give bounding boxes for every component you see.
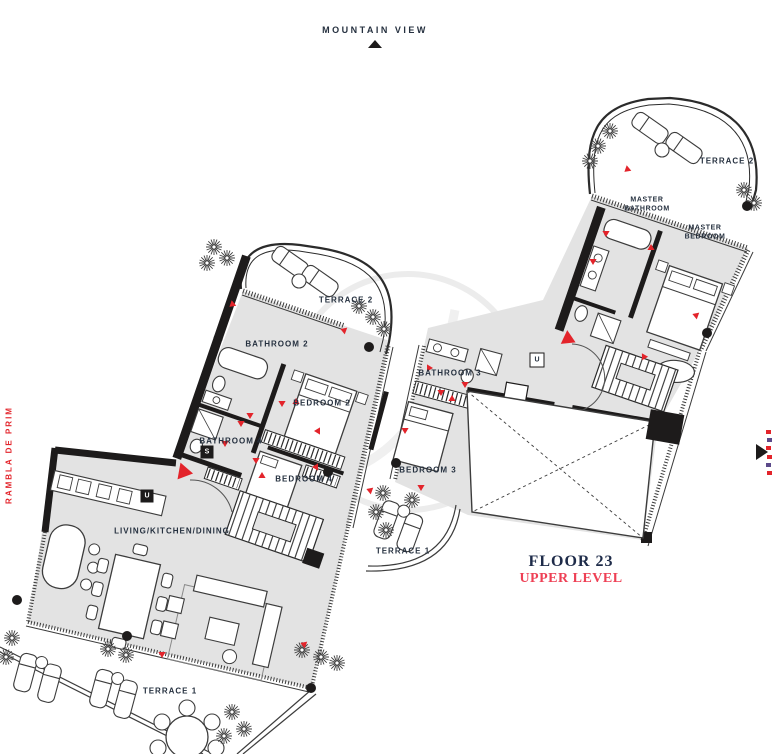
room-label-terrace2-upper: TERRACE 2 [700,157,754,166]
room-label-terrace2-lower: TERRACE 2 [319,296,373,305]
street-label-rambla: RAMBLA DE PRIM [5,406,14,504]
room-label-terrace1-upper: TERRACE 1 [376,547,430,556]
floorplan-canvas: MOUNTAIN VIEW RAMBLA DE PRIM TERRACE 2 B… [0,0,772,754]
floor-number-label: FLOOR 23 [519,553,622,571]
room-label-bedroom3: BEDROOM 3 [399,466,456,475]
room-label-master-bedroom-2: BEDROOM [685,234,726,241]
mountain-view-label: MOUNTAIN VIEW [322,25,428,35]
utility-label-lower: U [141,490,154,503]
room-label-living: LIVING/KITCHEN/DINING [114,527,230,536]
outdoor-dining-table [150,700,224,754]
room-label-bedroom2: BEDROOM 2 [293,399,350,408]
room-label-bathroom2: BATHROOM 2 [245,340,308,349]
room-label-master-bedroom-1: MASTER [688,225,721,232]
room-label-terrace1-lower: TERRACE 1 [143,687,197,696]
room-label-bedroom4: BEDROOM 4 [275,475,332,484]
room-label-master-bathroom-1: MASTER [630,197,663,204]
utility-label-upper: U [531,354,544,367]
plan-caption: FLOOR 23 UPPER LEVEL [519,553,622,587]
mountain-view-arrow-icon [368,40,382,48]
room-label-bathroom4: BATHROOM 4 [199,437,262,446]
upper-terrace2-facade [588,98,756,208]
room-label-bathroom3: BATHROOM 3 [418,369,481,378]
storage-label: S [201,446,214,459]
level-label: UPPER LEVEL [519,571,622,587]
lower-level-plan [0,239,408,754]
floorplan-drawing [0,0,772,754]
room-label-master-bathroom-2: BATHROOM [624,206,670,213]
clipped-street-marker [756,430,772,475]
